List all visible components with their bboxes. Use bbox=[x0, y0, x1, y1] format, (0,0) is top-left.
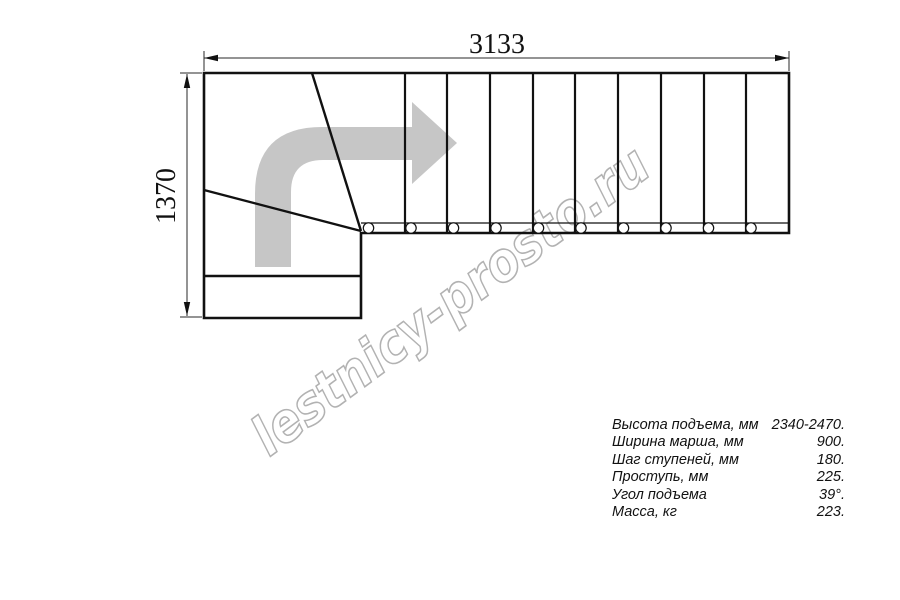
width-dimension-label: 3133 bbox=[469, 29, 525, 60]
spec-value: 900. bbox=[817, 434, 845, 451]
depth-dimension: 1370 bbox=[151, 73, 202, 317]
spec-table: Высота подъема, мм 2340-2470. Ширина мар… bbox=[612, 417, 845, 521]
travel-direction-arrow bbox=[255, 102, 457, 267]
spec-label: Угол подъема bbox=[612, 487, 707, 504]
width-dimension: 3133 bbox=[204, 29, 789, 71]
spec-value: 223. bbox=[817, 504, 845, 521]
spec-label: Ширина марша, мм bbox=[612, 434, 744, 451]
flight-step-lines bbox=[405, 73, 746, 233]
depth-dimension-label: 1370 bbox=[151, 168, 182, 224]
spec-value: 39°. bbox=[819, 487, 845, 504]
spec-label: Проступь, мм bbox=[612, 469, 708, 486]
spec-row-mass: Масса, кг 223. bbox=[612, 504, 845, 521]
spec-value: 2340-2470. bbox=[772, 417, 845, 434]
spec-label: Высота подъема, мм bbox=[612, 417, 759, 434]
spec-row-height: Высота подъема, мм 2340-2470. bbox=[612, 417, 845, 434]
spec-row-angle: Угол подъема 39°. bbox=[612, 487, 845, 504]
spec-value: 180. bbox=[817, 452, 845, 469]
watermark-text: lestnicy-prosto.ru bbox=[239, 133, 661, 468]
spec-row-tread: Проступь, мм 225. bbox=[612, 469, 845, 486]
spec-row-flight-width: Ширина марша, мм 900. bbox=[612, 434, 845, 451]
spec-label: Масса, кг bbox=[612, 504, 677, 521]
spec-row-step-rise: Шаг ступеней, мм 180. bbox=[612, 452, 845, 469]
spec-label: Шаг ступеней, мм bbox=[612, 452, 739, 469]
spec-value: 225. bbox=[817, 469, 845, 486]
stair-drawing-page: lestnicy-prosto.ru bbox=[0, 0, 900, 600]
